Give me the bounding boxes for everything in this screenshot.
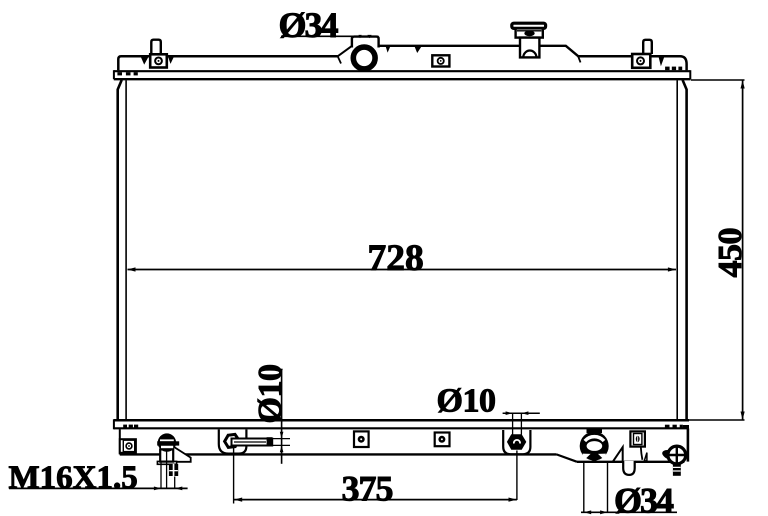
svg-text:Ø34: Ø34 <box>614 480 674 516</box>
svg-text:375: 375 <box>342 469 393 509</box>
svg-text:Ø10: Ø10 <box>252 365 289 424</box>
svg-text:Ø10: Ø10 <box>437 383 496 420</box>
svg-text:450: 450 <box>712 228 749 278</box>
svg-text:728: 728 <box>368 238 424 279</box>
svg-text:M16X1.5: M16X1.5 <box>9 460 138 496</box>
svg-text:Ø34: Ø34 <box>279 5 339 45</box>
